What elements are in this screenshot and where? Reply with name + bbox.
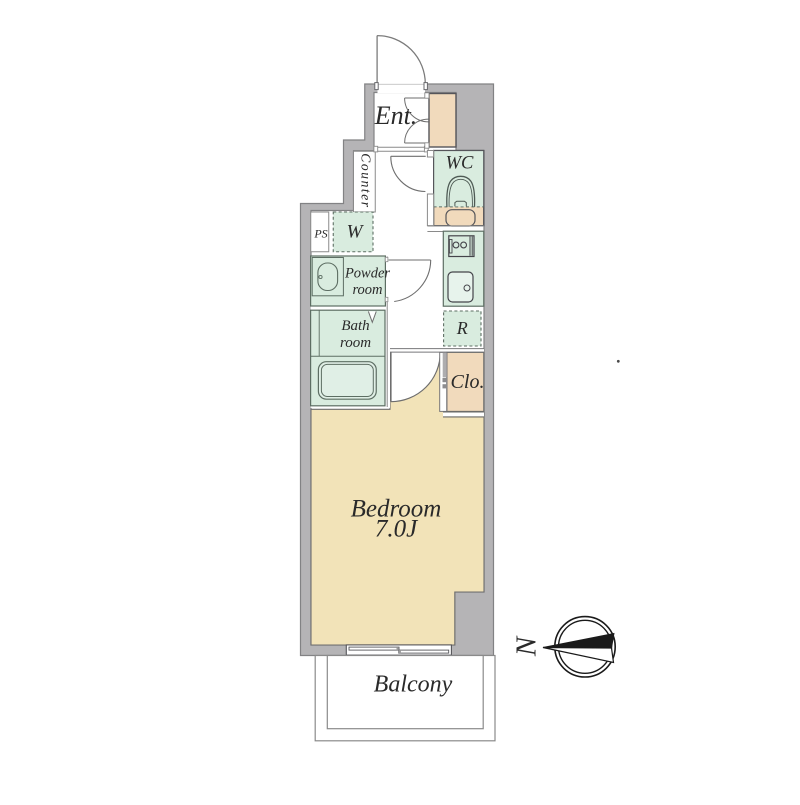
svg-text:Clo.: Clo. [451,371,485,393]
svg-text:Counter: Counter [359,153,374,208]
svg-text:Ent.: Ent. [374,101,418,130]
svg-text:W: W [347,222,365,243]
svg-text:R: R [456,318,468,338]
svg-text:PS: PS [313,227,327,241]
svg-text:WC: WC [446,154,474,174]
svg-text:room: room [352,282,382,298]
svg-text:7.0J: 7.0J [375,516,419,543]
svg-text:Powder: Powder [344,266,390,282]
svg-text:Balcony: Balcony [374,672,453,698]
svg-text:Bath: Bath [341,318,369,334]
svg-text:room: room [340,335,371,351]
svg-text:N: N [511,635,543,657]
